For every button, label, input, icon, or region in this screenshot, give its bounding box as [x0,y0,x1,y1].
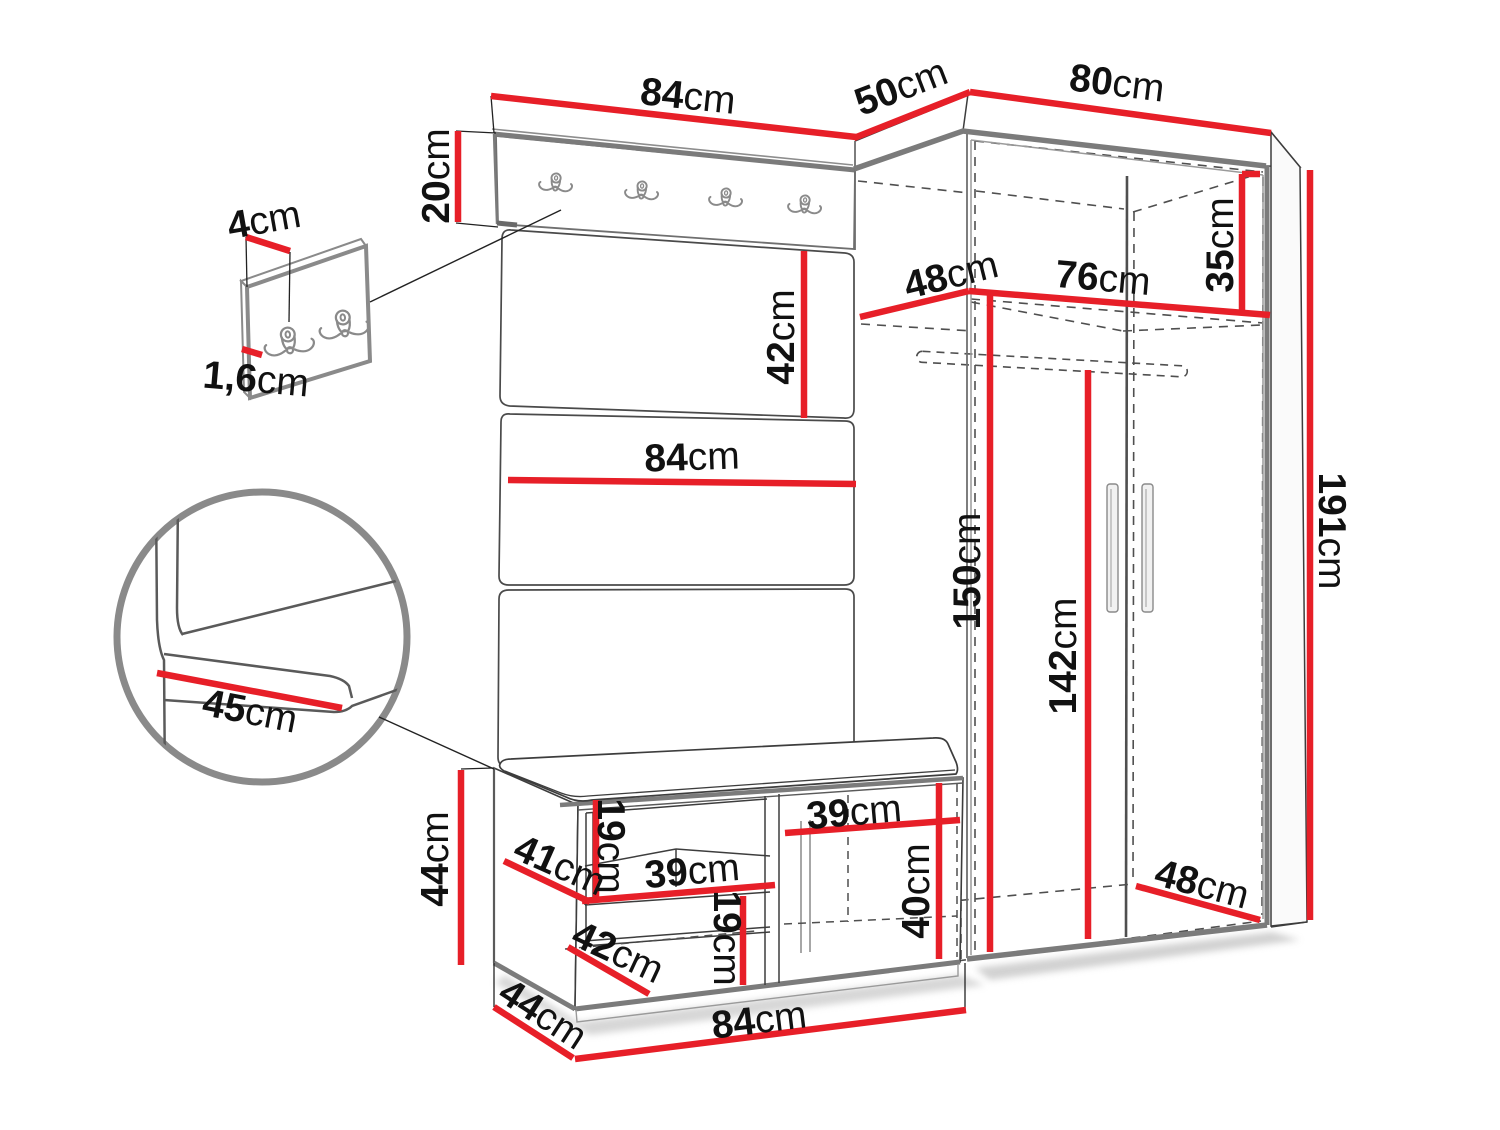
svg-text:42cm: 42cm [760,289,803,384]
svg-text:39cm: 39cm [643,845,742,896]
svg-text:35cm: 35cm [1199,197,1242,292]
svg-text:39cm: 39cm [805,786,904,837]
svg-text:19cm: 19cm [590,798,633,893]
svg-text:44cm: 44cm [414,811,457,906]
svg-text:40cm: 40cm [895,843,938,938]
svg-text:191cm: 191cm [1311,472,1354,589]
svg-text:76cm: 76cm [1054,252,1153,303]
svg-text:150cm: 150cm [946,512,989,629]
svg-text:84cm: 84cm [644,434,741,480]
svg-text:19cm: 19cm [706,890,749,985]
svg-text:20cm: 20cm [415,128,458,223]
svg-text:142cm: 142cm [1042,597,1085,714]
